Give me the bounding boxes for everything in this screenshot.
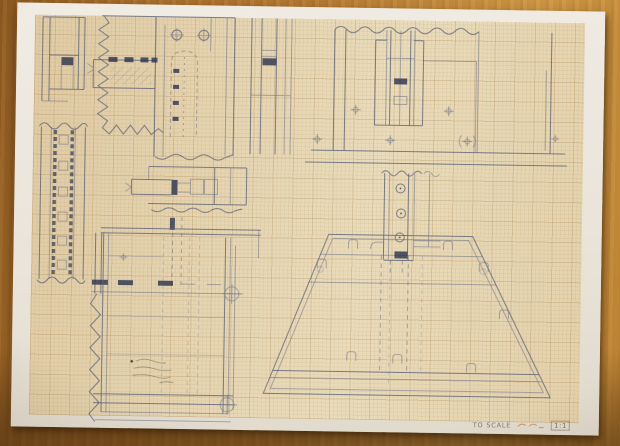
orange-pencil-marks: [516, 420, 546, 430]
view-tenon-joint-detail: [124, 166, 247, 288]
scale-note: TO SCALE: [473, 421, 511, 429]
view-assembly-plan: [89, 228, 261, 425]
desk-photo: TO SCALE 1:1: [0, 0, 620, 446]
view-post-in-base-elevation: [305, 26, 569, 166]
drawing-linework: [11, 2, 606, 435]
view-corner-joint-detail: [86, 16, 235, 161]
drawing-sheet: TO SCALE 1:1: [11, 2, 606, 435]
pencil-scribble-note: [130, 359, 174, 383]
view-drilled-post: [370, 170, 442, 277]
view-post-ladder-section: [37, 123, 88, 284]
title-block: TO SCALE 1:1: [473, 417, 591, 433]
view-plinth-base: [263, 233, 552, 397]
view-narrow-section-strip: [250, 18, 292, 155]
scale-value: 1:1: [551, 420, 570, 430]
view-corner-channel-section: [42, 17, 85, 102]
